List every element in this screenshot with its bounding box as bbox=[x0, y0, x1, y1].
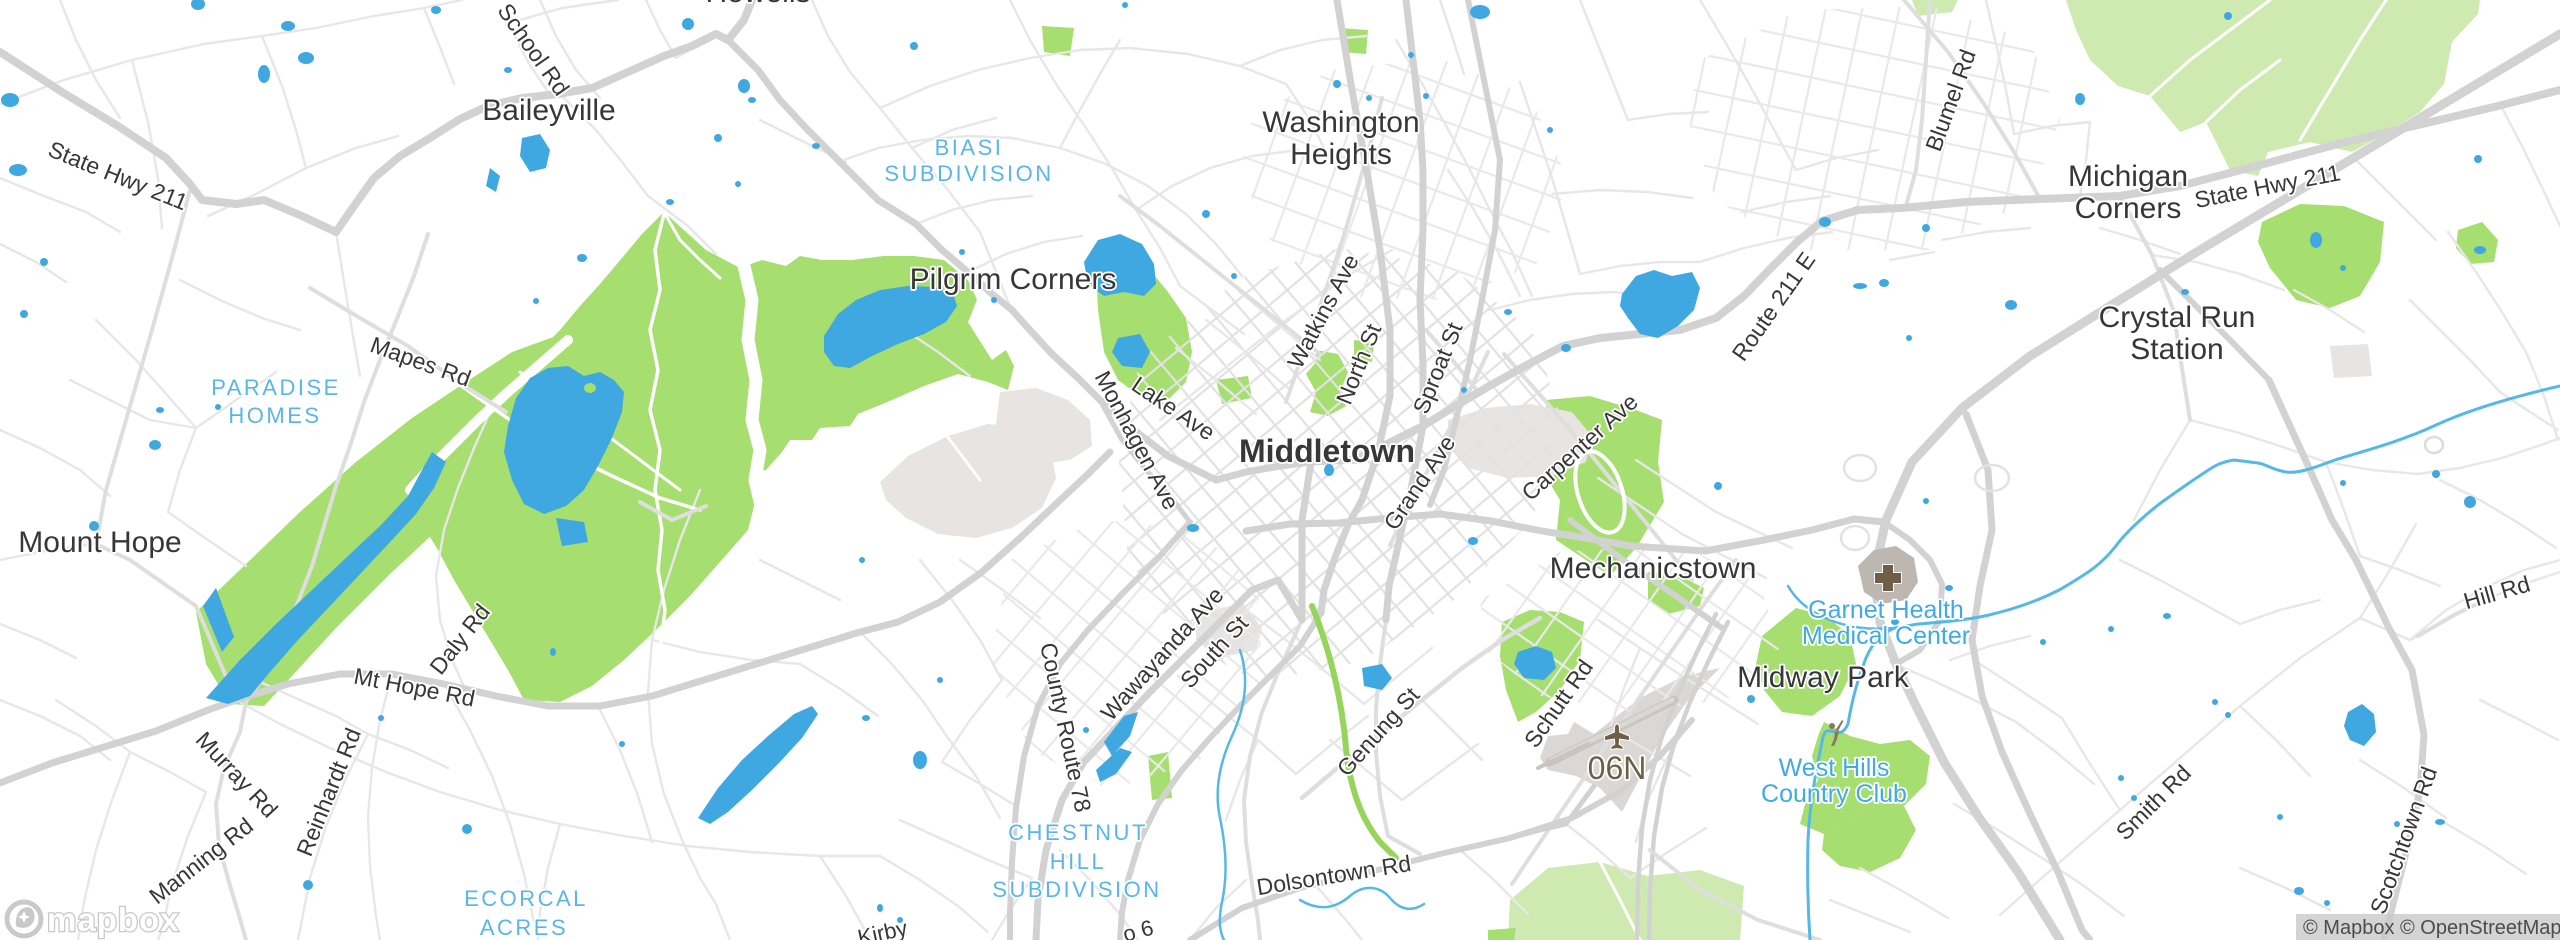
svg-text:Michigan: Michigan bbox=[2068, 160, 2188, 193]
svg-text:Mechanicstown: Mechanicstown bbox=[1550, 552, 1757, 585]
svg-text:Middletown: Middletown bbox=[1239, 433, 1415, 469]
svg-text:CHESTNUT: CHESTNUT bbox=[1008, 820, 1148, 845]
svg-text:Country Club: Country Club bbox=[1761, 780, 1907, 808]
svg-text:Washington: Washington bbox=[1262, 106, 1419, 139]
svg-text:Garnet Health: Garnet Health bbox=[1808, 596, 1964, 624]
svg-text:ACRES: ACRES bbox=[480, 915, 568, 940]
svg-text:Heights: Heights bbox=[1290, 138, 1392, 171]
svg-text:Crystal Run: Crystal Run bbox=[2099, 301, 2256, 334]
svg-text:Baileyville: Baileyville bbox=[482, 94, 615, 127]
svg-text:West Hills: West Hills bbox=[1779, 754, 1890, 782]
svg-text:SUBDIVISION: SUBDIVISION bbox=[884, 161, 1053, 186]
svg-text:06N: 06N bbox=[1588, 750, 1647, 786]
svg-text:ECORCAL: ECORCAL bbox=[464, 886, 588, 911]
svg-text:mapbox: mapbox bbox=[47, 901, 180, 938]
svg-text:Medical Center: Medical Center bbox=[1802, 622, 1970, 650]
svg-text:Howells: Howells bbox=[705, 0, 810, 9]
svg-text:HILL: HILL bbox=[1050, 849, 1106, 874]
svg-text:Midway Park: Midway Park bbox=[1737, 661, 1910, 694]
svg-text:Mount Hope: Mount Hope bbox=[18, 526, 181, 559]
svg-text:BIASI: BIASI bbox=[935, 135, 1004, 160]
svg-text:© Mapbox © OpenStreetMap: © Mapbox © OpenStreetMap bbox=[2303, 917, 2560, 939]
svg-text:Pilgrim Corners: Pilgrim Corners bbox=[910, 263, 1117, 296]
svg-text:HOMES: HOMES bbox=[228, 403, 321, 428]
svg-text:Corners: Corners bbox=[2075, 192, 2182, 225]
svg-text:Station: Station bbox=[2130, 333, 2223, 366]
svg-text:PARADISE: PARADISE bbox=[211, 375, 341, 400]
svg-text:SUBDIVISION: SUBDIVISION bbox=[992, 877, 1161, 902]
